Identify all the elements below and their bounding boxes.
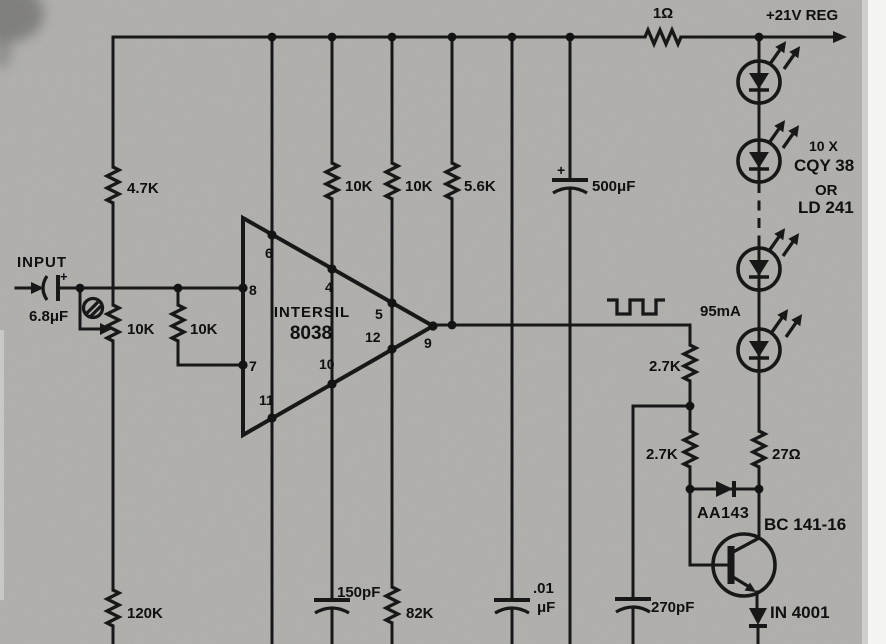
clamp-diode-label: AA143: [697, 505, 749, 522]
ic-pin6-label: 6: [265, 245, 273, 261]
rail-voltage-label: +21V REG: [766, 7, 838, 24]
ic-pin7-label: 7: [249, 358, 257, 374]
resistor-82k-label: 82K: [406, 605, 434, 622]
capacitor-500uf-plus: +: [557, 162, 565, 178]
scan-margin-right: [868, 0, 886, 644]
capacitor-500uf-label: 500μF: [592, 178, 635, 195]
capacitor-6u8-plus: +: [60, 269, 68, 284]
resistor-10k-b-label: 10K: [405, 178, 433, 195]
ic-pin4-label: 4: [325, 279, 333, 295]
resistor-4k7-label: 4.7K: [127, 180, 159, 197]
resistor-27ohm-label: 27Ω: [772, 446, 801, 463]
capacitor-6u8-label: 6.8μF: [29, 308, 68, 325]
capacitor-150pf-label: 150pF: [337, 584, 380, 601]
led-qty-label: 10 X: [809, 138, 838, 154]
capacitor-270pf-label: 270pF: [651, 599, 694, 616]
led-part-b-label: LD 241: [798, 198, 854, 217]
led-current-label: 95mA: [700, 303, 741, 320]
resistor-10k-input-label: 10K: [190, 321, 218, 338]
ic-pin11-label: 11: [259, 392, 274, 408]
resistor-2k7-top-label: 2.7K: [649, 358, 681, 375]
transistor-label: BC 141-16: [764, 515, 846, 534]
led-part-a-label: CQY 38: [794, 156, 854, 175]
schematic-page: 1Ω +21V REG 4.7K 10K 10K 5.6K + 500μF IN…: [0, 0, 886, 644]
ic-pin10-label: 10: [319, 356, 335, 372]
ic-pin12-label: 12: [365, 329, 381, 345]
resistor-5k6-label: 5.6K: [464, 178, 496, 195]
resistor-1ohm-label: 1Ω: [653, 5, 673, 22]
capacitor-01uf-label-unit: μF: [537, 599, 555, 616]
led-flasher-schematic: 1Ω +21V REG 4.7K 10K 10K 5.6K + 500μF IN…: [0, 0, 886, 644]
pot-10k-label: 10K: [127, 321, 155, 338]
resistor-120k-label: 120K: [127, 605, 163, 622]
scan-edge-left: [0, 330, 4, 600]
ic-pin9-label: 9: [424, 335, 432, 351]
led-or-label: OR: [815, 182, 838, 199]
ic-pin8-label: 8: [249, 282, 257, 298]
ic-pin5-label: 5: [375, 306, 383, 322]
rectifier-diode-label: IN 4001: [770, 603, 830, 622]
resistor-10k-a-label: 10K: [345, 178, 373, 195]
capacitor-01uf-label-value: .01: [533, 580, 554, 597]
ic-part-label: 8038: [290, 323, 332, 344]
resistor-2k7-bottom-label: 2.7K: [646, 446, 678, 463]
ic-maker-label: INTERSIL: [274, 304, 350, 321]
